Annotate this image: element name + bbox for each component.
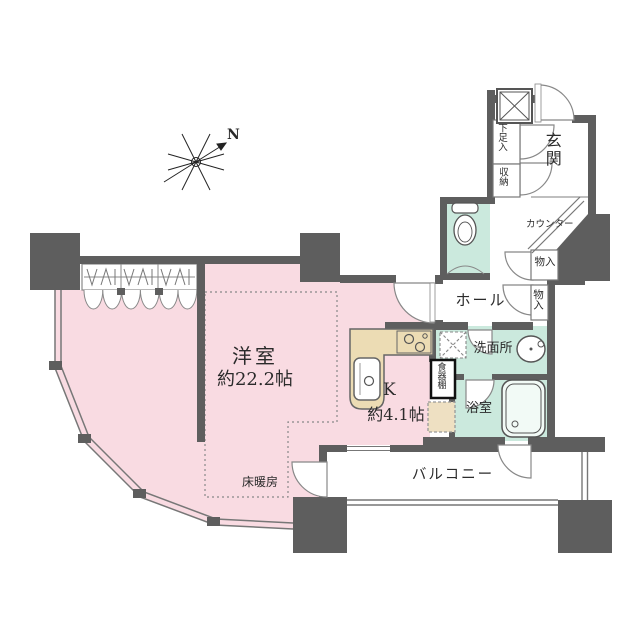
living-room-label: 洋室 — [205, 346, 305, 367]
pillar-southwest — [293, 497, 347, 553]
shoe-cabinet-label: 下足入 — [496, 123, 506, 152]
kitchen-label: K — [383, 382, 396, 400]
duct-shaft-icon — [497, 89, 532, 123]
kitchen-size: 約4.1帖 — [358, 407, 434, 424]
room-partition-wall — [197, 258, 205, 442]
living-room-size: 約22.2帖 — [195, 371, 315, 390]
closet1-door-arc — [505, 252, 533, 280]
entrance-label: 玄関 — [543, 132, 560, 168]
washroom-label: 洗面所 — [466, 342, 520, 356]
balcony-label: バルコニー — [405, 468, 501, 483]
entry-door-leaf — [535, 84, 541, 122]
hall-label: ホール — [446, 293, 516, 309]
closet2-label: 物入 — [532, 289, 543, 310]
entry-door-arc — [539, 85, 574, 120]
cupboard-label: 食器棚 — [435, 362, 444, 389]
pillar-southeast — [558, 500, 612, 553]
kitchen-sink-icon — [354, 358, 380, 400]
hall-living-door-leaf — [430, 283, 435, 322]
compass-icon — [164, 134, 226, 190]
pillar-northwest — [30, 233, 80, 290]
bathtub-icon — [502, 380, 545, 437]
counter-label: カウンター — [526, 220, 574, 230]
storage-label: 収納 — [497, 167, 507, 186]
compass-north-label: N — [227, 128, 240, 143]
floor-heating-label: 床暖房 — [224, 476, 296, 489]
south-window — [347, 445, 390, 452]
floor-plan: 洋室 約22.2帖 床暖房 K 約4.1帖 食器棚 ホール 物入 物入 玄関 カ… — [0, 0, 640, 640]
washer-space-icon — [440, 332, 466, 358]
closet1-label: 物入 — [533, 257, 557, 268]
floor-plan-drawing — [0, 0, 640, 640]
washbasin-icon — [517, 336, 545, 362]
bathroom-label: 浴室 — [462, 402, 496, 416]
pillar-north — [300, 233, 340, 282]
